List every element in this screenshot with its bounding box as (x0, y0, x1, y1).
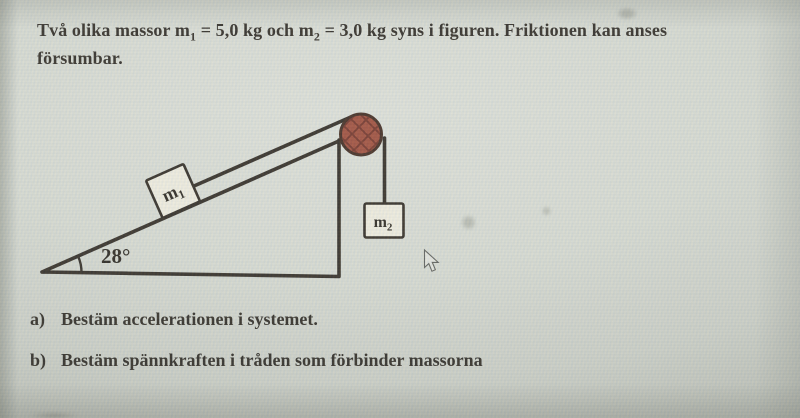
question-b-label: b) (30, 349, 61, 371)
angle-label: 28° (101, 244, 130, 268)
incline-triangle (42, 140, 340, 277)
mouse-cursor-icon (425, 250, 439, 271)
pulley-icon (334, 100, 390, 164)
question-list: a) Bestäm accelerationen i systemet. b) … (30, 308, 483, 390)
pulley-wheel (341, 114, 382, 155)
question-a: a) Bestäm accelerationen i systemet. (30, 308, 483, 330)
mass2-block: m2 (365, 204, 404, 238)
scanned-physics-problem-page: Två olika massor m1 = 5,0 kg och m2 = 3,… (0, 0, 800, 418)
question-a-label: a) (30, 308, 61, 330)
angle-arc (78, 256, 82, 273)
question-b-text: Bestäm spännkraften i tråden som förbind… (61, 349, 483, 371)
question-b: b) Bestäm spännkraften i tråden som förb… (30, 349, 483, 371)
diagram-lines (42, 117, 385, 277)
page-content: Två olika massor m1 = 5,0 kg och m2 = 3,… (0, 0, 800, 418)
string-mass1-to-pulley (194, 117, 352, 187)
question-a-text: Bestäm accelerationen i systemet. (61, 308, 318, 330)
mass1-block: m1 (146, 164, 200, 218)
